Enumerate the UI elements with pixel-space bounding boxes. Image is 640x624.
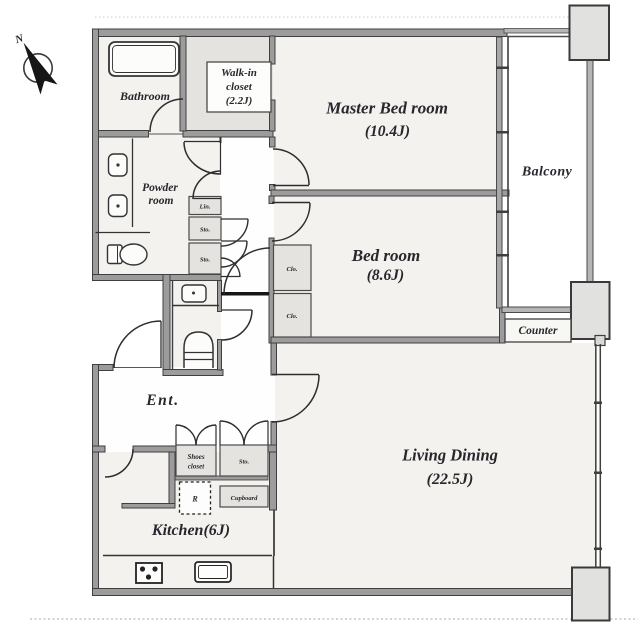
svg-text:room: room bbox=[149, 195, 174, 207]
svg-text:Powder: Powder bbox=[142, 182, 178, 194]
svg-text:Clo.: Clo. bbox=[286, 266, 297, 273]
svg-text:Bed room: Bed room bbox=[351, 246, 420, 265]
svg-text:Clo.: Clo. bbox=[286, 313, 297, 320]
svg-text:Walk-in: Walk-in bbox=[221, 67, 257, 79]
svg-text:Lin.: Lin. bbox=[198, 204, 210, 211]
svg-text:(10.4J): (10.4J) bbox=[365, 123, 410, 140]
svg-text:(22.5J): (22.5J) bbox=[427, 471, 474, 488]
svg-text:N: N bbox=[13, 32, 26, 47]
svg-text:(2.2J): (2.2J) bbox=[226, 95, 253, 107]
svg-text:Ent.: Ent. bbox=[145, 392, 180, 409]
svg-text:Sto.: Sto. bbox=[200, 257, 211, 264]
svg-text:closet: closet bbox=[226, 81, 253, 93]
svg-text:Sto.: Sto. bbox=[239, 459, 250, 466]
svg-text:R: R bbox=[191, 495, 198, 504]
svg-text:Sto.: Sto. bbox=[200, 227, 211, 234]
svg-text:(8.6J): (8.6J) bbox=[367, 267, 404, 284]
svg-text:Counter: Counter bbox=[519, 325, 559, 337]
svg-text:Shoes: Shoes bbox=[187, 453, 204, 461]
svg-text:Kitchen(6J): Kitchen(6J) bbox=[151, 522, 230, 539]
svg-text:Bathroom: Bathroom bbox=[119, 89, 170, 103]
svg-text:Living Dining: Living Dining bbox=[401, 446, 498, 465]
svg-text:closet: closet bbox=[188, 463, 205, 471]
svg-text:Cupboard: Cupboard bbox=[231, 495, 258, 502]
svg-text:Balcony: Balcony bbox=[521, 165, 573, 180]
svg-text:Master Bed room: Master Bed room bbox=[325, 99, 448, 118]
